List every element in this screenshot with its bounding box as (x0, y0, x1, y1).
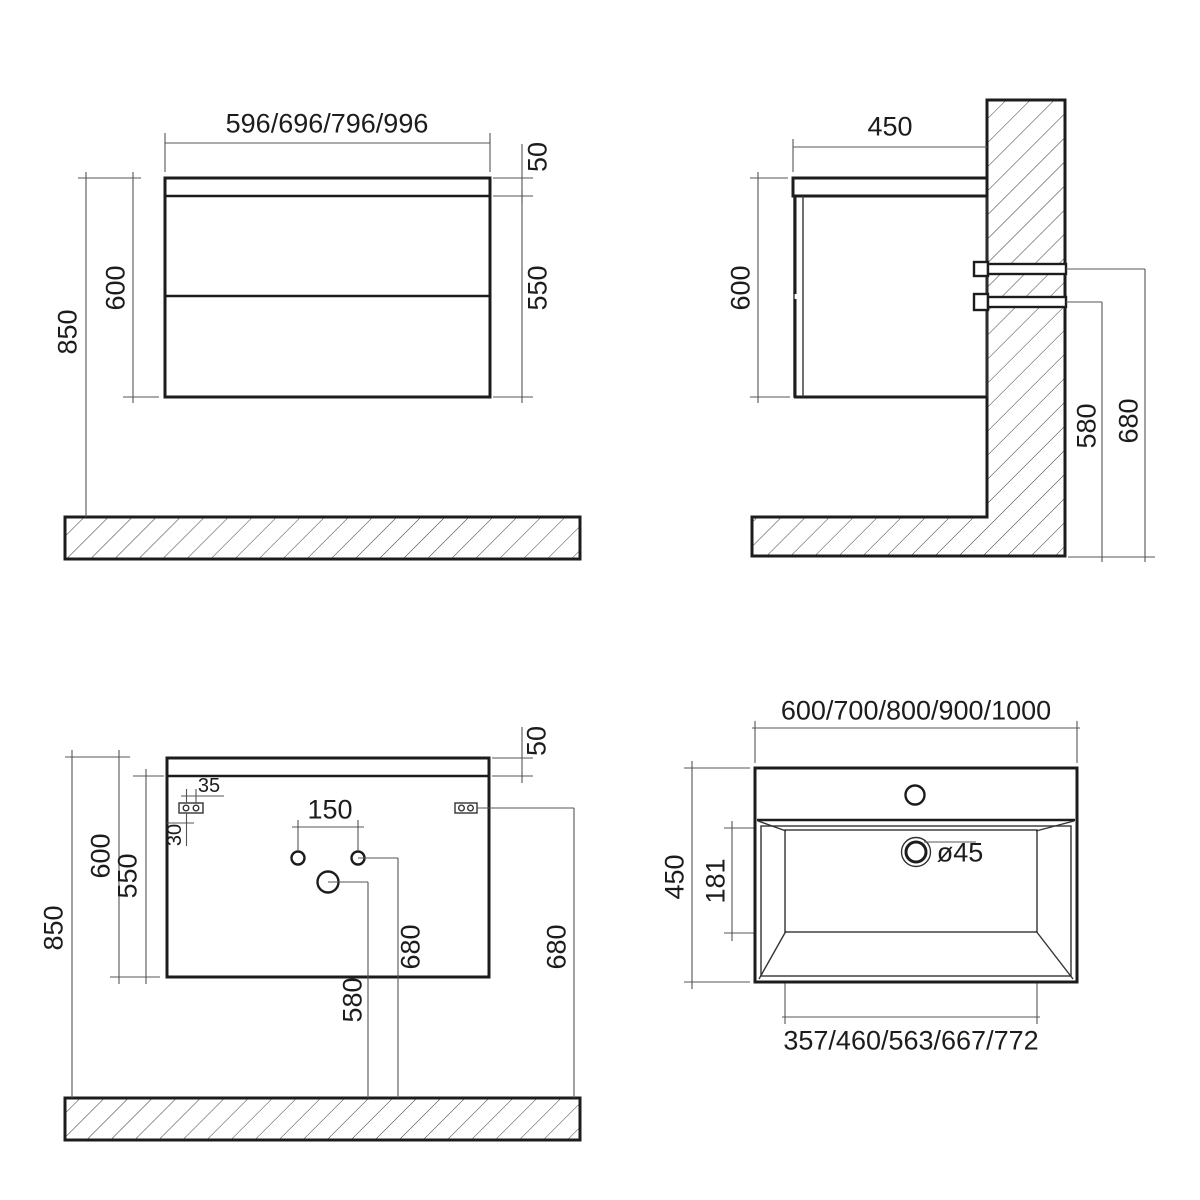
back-floor-hatch (65, 1098, 580, 1140)
front-cabinet-outline (165, 178, 490, 397)
back-drawer-dimension: 550 (115, 853, 142, 898)
side-lower-bracket-head (974, 294, 988, 310)
basin-bowl-depth-dimension: 181 (703, 858, 730, 903)
back-drain-height-dimension: 580 (340, 977, 367, 1022)
side-height-dimension: 600 (728, 265, 755, 310)
back-supply-span-dimension: 150 (307, 797, 352, 824)
side-depth-dimension: 450 (867, 114, 912, 141)
basin-depth-dimension: 450 (662, 854, 689, 899)
side-upper-bracket-head (974, 262, 988, 276)
front-height-dimension: 600 (103, 265, 130, 310)
basin-width-dimension: 600/700/800/900/1000 (781, 698, 1051, 725)
basin-outline (755, 768, 1077, 982)
front-view (65, 133, 580, 559)
side-lower-bracket-dimension: 580 (1074, 403, 1101, 448)
side-upper-bracket-bar (988, 264, 1066, 274)
back-install-height-dimension: 850 (41, 905, 68, 950)
side-view (750, 100, 1155, 562)
technical-drawing-canvas: 596/696/796/996 50 550 600 850 450 600 6… (0, 0, 1200, 1200)
back-bracket-height-dimension: 680 (544, 924, 571, 969)
front-width-dimension: 596/696/796/996 (226, 111, 429, 138)
front-install-height-dimension: 850 (55, 309, 82, 354)
side-cabinet-body (794, 196, 987, 397)
back-plate-span-dimension: 35 (198, 776, 220, 796)
side-upper-bracket-dimension: 680 (1116, 398, 1143, 443)
side-wall-floor-hatch (752, 100, 1065, 556)
basin-top-view (684, 721, 1080, 1024)
side-top-panel (793, 178, 987, 196)
front-floor-hatch (65, 517, 580, 559)
basin-drain-diameter-label: ø45 (937, 840, 984, 867)
back-view (65, 727, 580, 1140)
front-top-panel-dimension: 50 (525, 142, 552, 172)
side-lower-bracket-bar (988, 297, 1066, 307)
front-drawer-dimension: 550 (525, 265, 552, 310)
back-height-dimension: 600 (88, 833, 115, 878)
basin-bowl-width-dimension: 357/460/563/667/772 (783, 1028, 1038, 1055)
back-plate-offset-dimension: 30 (165, 824, 185, 846)
back-top-panel-dimension: 50 (524, 726, 551, 756)
back-supply-height-dimension: 680 (398, 924, 425, 969)
drawing-geometry (0, 0, 1200, 1200)
